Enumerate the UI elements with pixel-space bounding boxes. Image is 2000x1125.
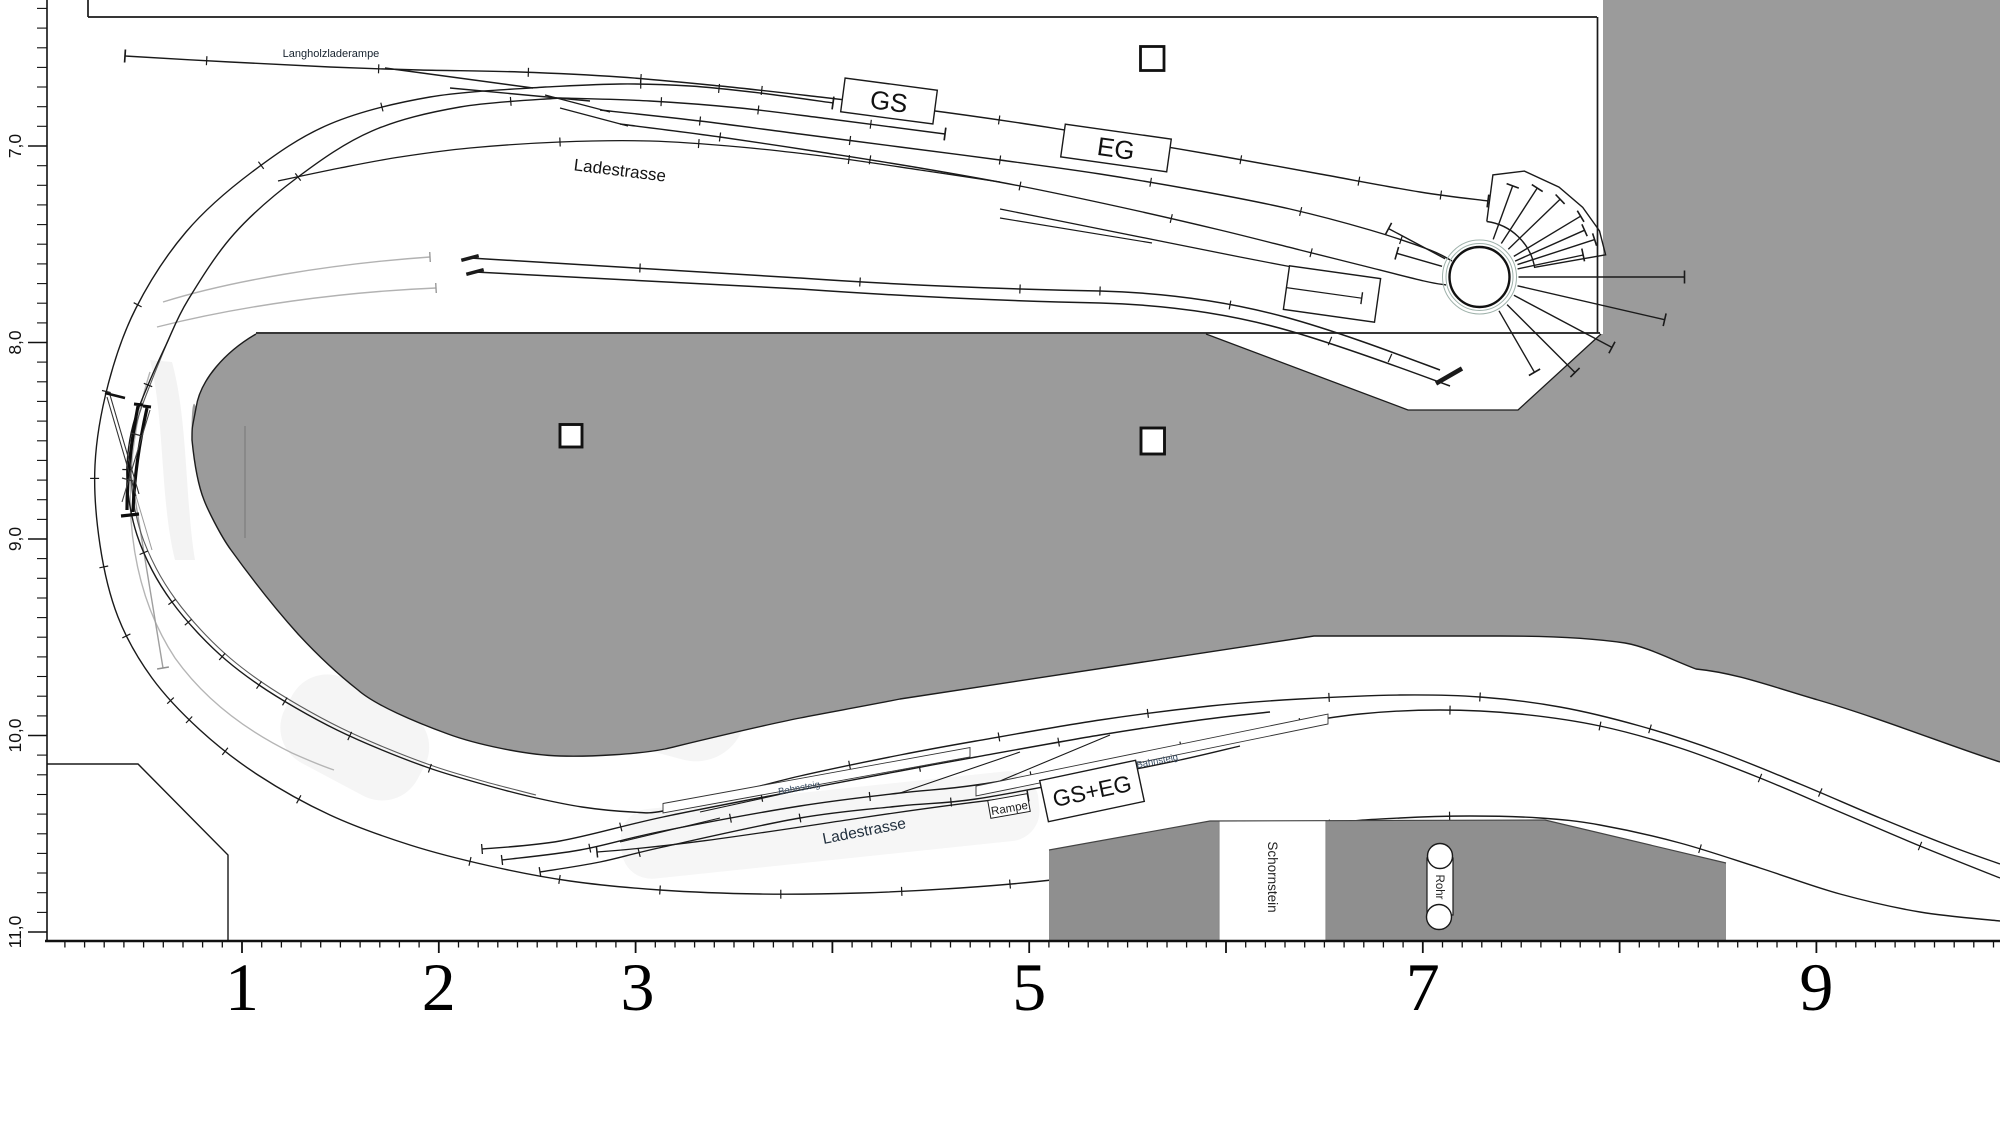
svg-text:7,0: 7,0: [5, 134, 25, 159]
svg-text:EG: EG: [1095, 131, 1136, 166]
svg-text:9,0: 9,0: [5, 527, 25, 552]
svg-text:7: 7: [1406, 949, 1440, 1025]
svg-text:Langholzladerampe: Langholzladerampe: [283, 48, 380, 60]
svg-text:5: 5: [1012, 949, 1046, 1025]
svg-text:GS: GS: [868, 84, 909, 119]
svg-text:10,0: 10,0: [5, 718, 25, 752]
svg-text:Rohr: Rohr: [1433, 875, 1445, 900]
svg-text:2: 2: [422, 949, 456, 1025]
svg-text:Schornstein: Schornstein: [1265, 841, 1280, 912]
svg-text:8,0: 8,0: [5, 330, 25, 355]
svg-text:11,0: 11,0: [5, 915, 25, 948]
svg-text:3: 3: [621, 949, 655, 1025]
svg-text:1: 1: [225, 949, 259, 1025]
svg-text:9: 9: [1799, 949, 1833, 1025]
